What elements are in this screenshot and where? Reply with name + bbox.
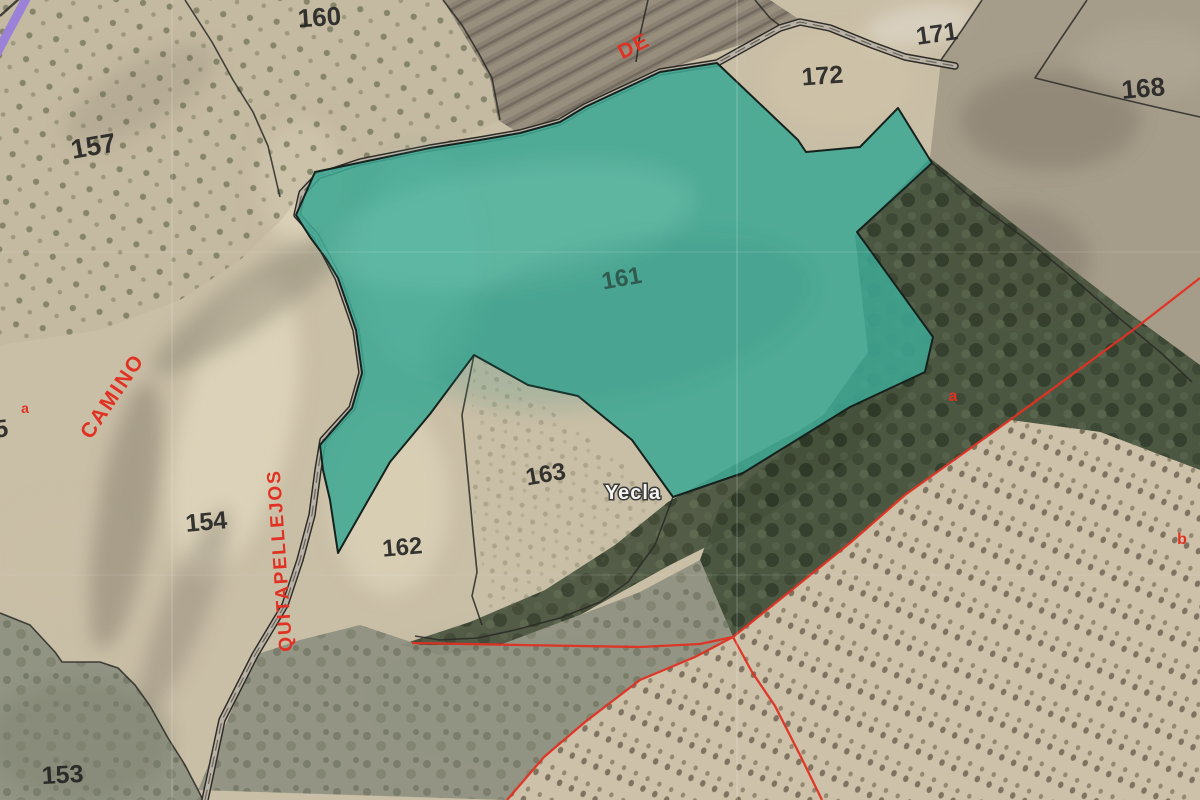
subparcel-label-a-west: a: [21, 400, 29, 416]
parcel-label-160: 160: [297, 1, 342, 34]
subparcel-label-a-east: a: [949, 388, 958, 405]
parcel-label-153: 153: [41, 760, 84, 790]
cadastral-map-viewport[interactable]: 160 157 171 172 168 161 163 162 154 153 …: [0, 0, 1200, 800]
place-label-yecla: Yecla: [605, 482, 661, 504]
subparcel-label-b-east: b: [1177, 531, 1187, 548]
map-canvas[interactable]: 160 157 171 172 168 161 163 162 154 153 …: [0, 0, 1200, 800]
parcel-label-162: 162: [381, 532, 423, 562]
parcel-label-171: 171: [914, 17, 959, 51]
parcel-label-172: 172: [801, 61, 845, 92]
parcel-label-154: 154: [184, 506, 228, 538]
parcel-label-168: 168: [1120, 71, 1166, 105]
